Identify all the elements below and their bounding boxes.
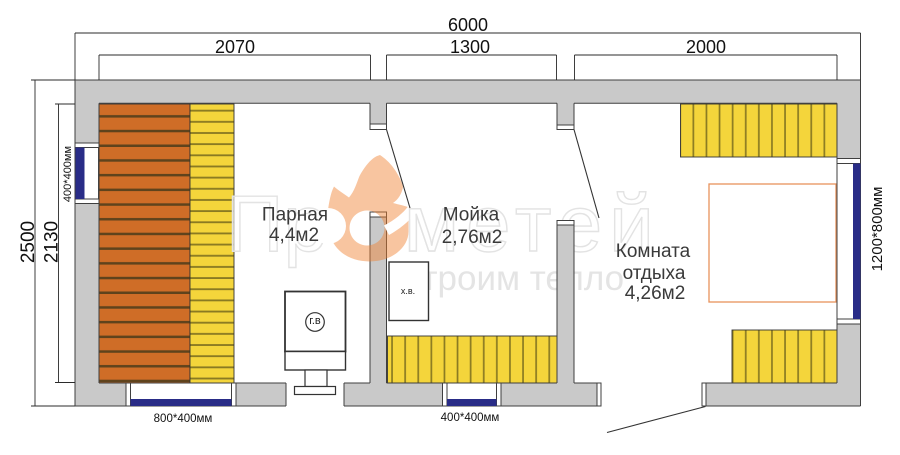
svg-text:2500: 2500 <box>18 221 39 263</box>
svg-text:отдыха: отдыха <box>623 263 686 284</box>
svg-text:2,76м2: 2,76м2 <box>442 227 503 248</box>
svg-text:6000: 6000 <box>448 15 488 35</box>
svg-text:4,26м2: 4,26м2 <box>625 283 686 304</box>
svg-text:400*400мм: 400*400мм <box>441 412 500 424</box>
svg-text:1200*800мм: 1200*800мм <box>869 187 886 272</box>
svg-text:2070: 2070 <box>215 37 255 57</box>
svg-text:4,4м2: 4,4м2 <box>269 225 319 246</box>
svg-text:2130: 2130 <box>42 221 63 263</box>
svg-text:2000: 2000 <box>686 37 726 57</box>
svg-text:1300: 1300 <box>450 37 490 57</box>
svg-text:х.в.: х.в. <box>401 286 415 296</box>
svg-text:Комната: Комната <box>616 241 691 262</box>
svg-text:800*400мм: 800*400мм <box>154 413 213 425</box>
svg-text:Мойка: Мойка <box>443 205 500 226</box>
svg-text:г.в: г.в <box>309 315 321 327</box>
svg-text:400*400мм: 400*400мм <box>62 146 74 202</box>
svg-text:Парная: Парная <box>262 205 328 226</box>
